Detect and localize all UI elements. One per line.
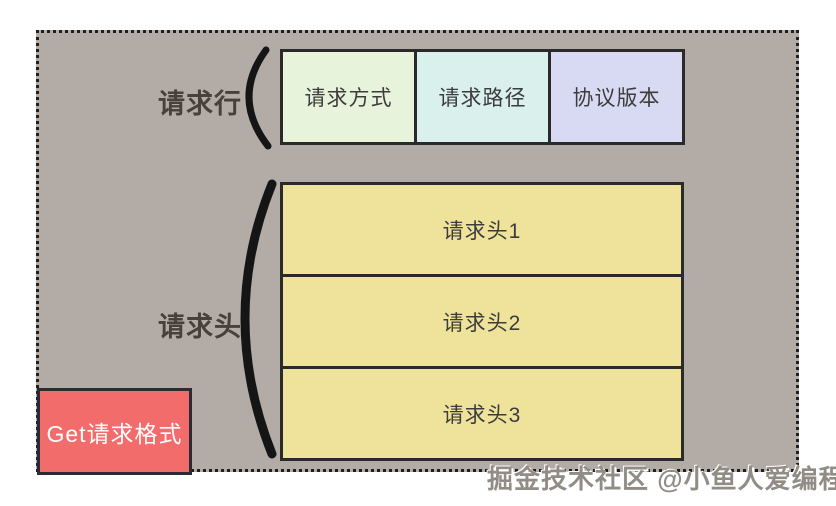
request-line-label: 请求行: [158, 82, 242, 121]
protocol-version-box: 协议版本: [548, 49, 685, 145]
diagram-canvas: 请求行 请求方式 请求路径 协议版本 请求头 请求头1 请求头2 请求头3 Ge…: [0, 0, 836, 506]
request-headers-label: 请求头: [158, 305, 242, 344]
request-headers-stack: 请求头1 请求头2 请求头3: [280, 182, 684, 461]
request-method-box: 请求方式: [280, 49, 417, 145]
request-line-row: 请求方式 请求路径 协议版本: [280, 49, 685, 145]
request-header-1-box: 请求头1: [280, 182, 684, 277]
get-request-format-title-box: Get请求格式: [37, 388, 192, 475]
request-header-3-box: 请求头3: [280, 366, 684, 461]
request-path-box: 请求路径: [414, 49, 551, 145]
request-header-2-box: 请求头2: [280, 274, 684, 369]
watermark-text: 掘金技术社区 @小鱼人爱编程: [487, 459, 836, 496]
